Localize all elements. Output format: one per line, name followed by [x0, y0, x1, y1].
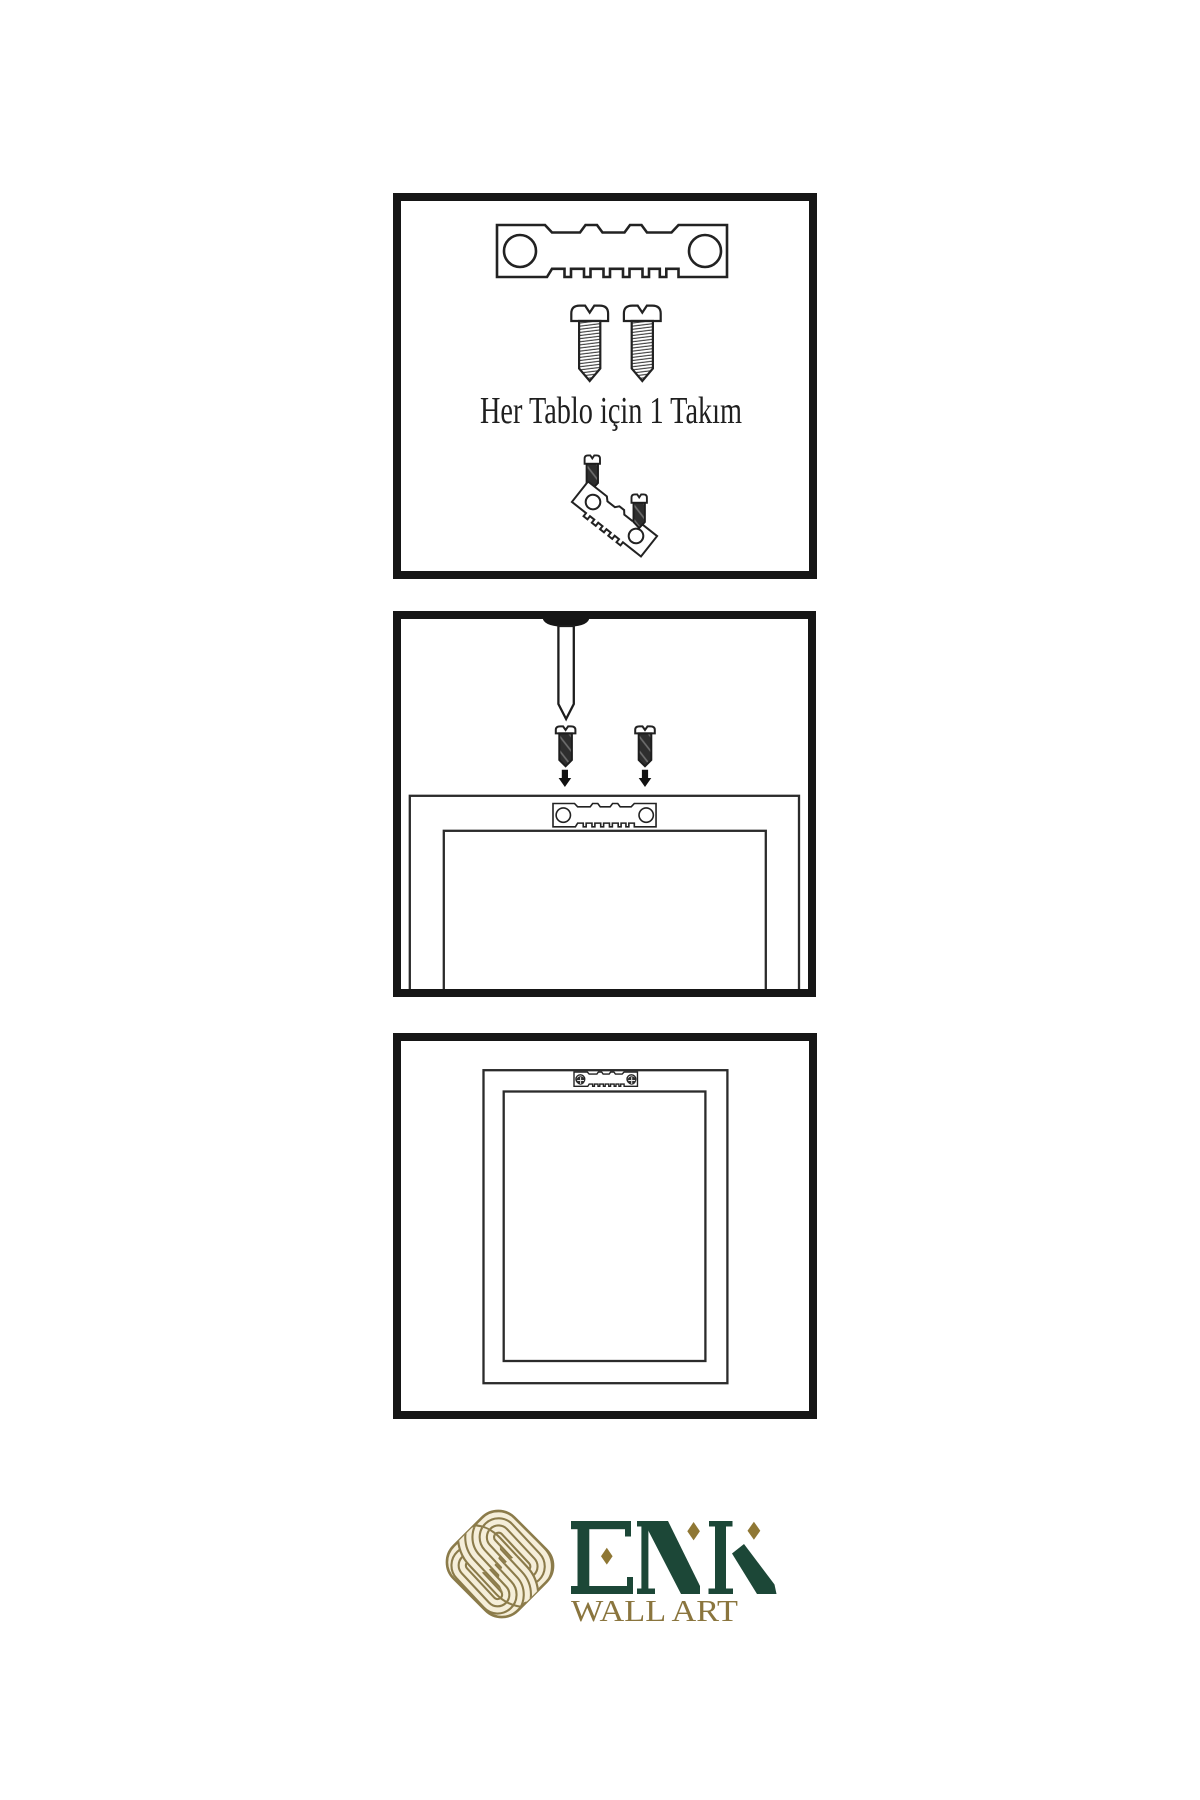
svg-text:Her Tablo için 1 Takım: Her Tablo için 1 Takım — [480, 390, 742, 432]
svg-text:WALL ART: WALL ART — [571, 1594, 738, 1628]
